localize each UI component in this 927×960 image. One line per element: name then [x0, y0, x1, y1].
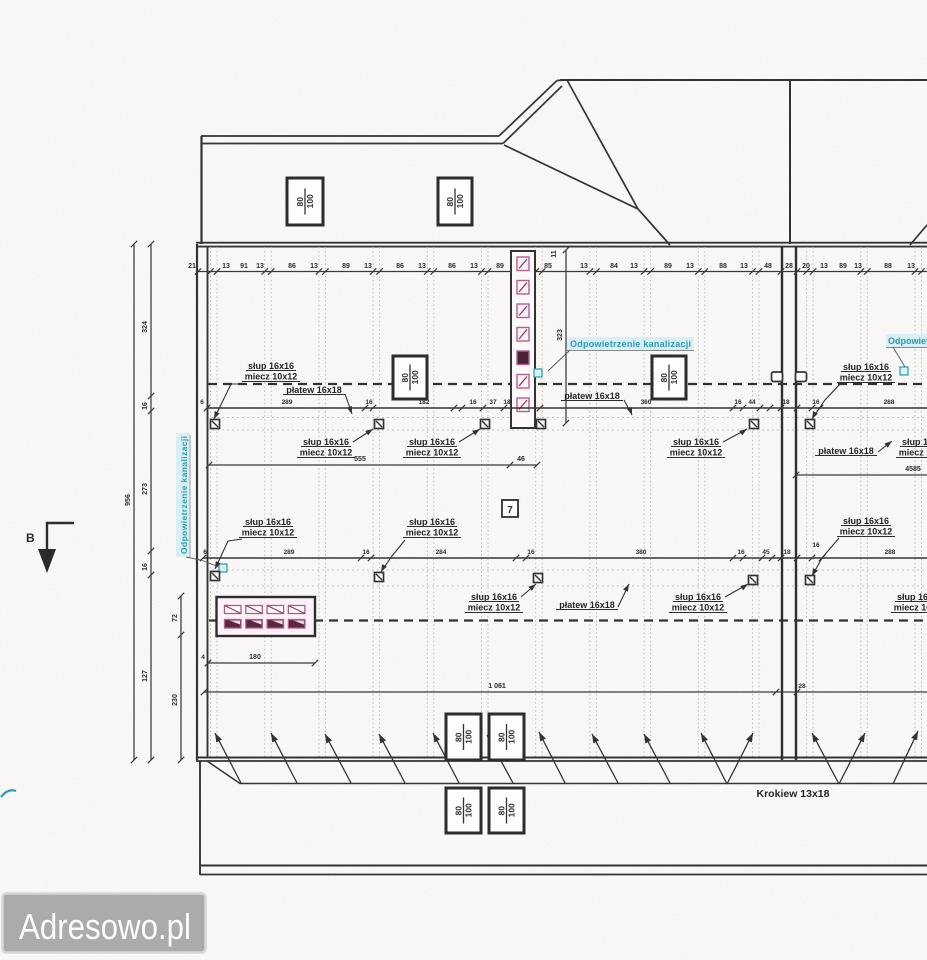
svg-text:13: 13: [740, 263, 748, 270]
svg-text:80: 80: [496, 806, 506, 816]
svg-text:323: 323: [557, 329, 564, 341]
svg-text:230: 230: [172, 694, 179, 706]
svg-text:16: 16: [142, 563, 149, 571]
svg-text:100: 100: [506, 803, 516, 817]
svg-text:555: 555: [354, 456, 366, 463]
svg-text:956: 956: [125, 494, 132, 506]
svg-text:273: 273: [142, 483, 149, 495]
svg-text:Odpowietrzenie kanalizacji: Odpowietrzenie kanalizacji: [179, 436, 189, 554]
svg-text:86: 86: [448, 263, 456, 270]
svg-text:16: 16: [365, 399, 373, 406]
svg-text:miecz 10x12: miecz 10x12: [899, 448, 927, 458]
svg-text:13: 13: [418, 263, 426, 270]
svg-text:6: 6: [203, 549, 207, 556]
svg-text:20: 20: [802, 263, 810, 270]
svg-text:B: B: [26, 531, 35, 545]
svg-text:72: 72: [172, 614, 179, 622]
svg-text:37: 37: [489, 399, 497, 406]
svg-text:13: 13: [222, 263, 230, 270]
svg-text:18: 18: [782, 399, 790, 406]
svg-text:słup 16x16: słup 16x16: [303, 437, 349, 447]
svg-text:380: 380: [636, 549, 647, 556]
svg-text:Krokiew 13x18: Krokiew 13x18: [757, 788, 830, 800]
svg-text:86: 86: [288, 263, 296, 270]
svg-text:miecz 10x12: miecz 10x12: [300, 448, 353, 458]
svg-text:289: 289: [282, 399, 293, 406]
svg-text:18: 18: [783, 549, 791, 556]
svg-text:100: 100: [463, 729, 473, 743]
svg-text:16: 16: [812, 542, 820, 549]
svg-text:słup 16x16: słup 16x16: [409, 517, 455, 527]
svg-text:miecz 10x12: miecz 10x12: [840, 373, 893, 383]
svg-text:16: 16: [469, 399, 477, 406]
svg-text:13: 13: [364, 263, 372, 270]
svg-text:słup 16x16: słup 16x16: [248, 361, 294, 371]
svg-text:słup 16x16: słup 16x16: [843, 362, 889, 372]
svg-text:płatew 16x18: płatew 16x18: [286, 385, 342, 395]
svg-text:słup 16x16: słup 16x16: [245, 517, 291, 527]
svg-text:89: 89: [839, 263, 847, 270]
svg-text:słup 16x16: słup 16x16: [673, 437, 719, 447]
svg-text:28: 28: [785, 263, 793, 270]
svg-text:100: 100: [506, 729, 516, 743]
svg-text:16: 16: [737, 549, 745, 556]
svg-text:288: 288: [884, 399, 895, 406]
svg-text:80: 80: [445, 197, 455, 207]
svg-text:80: 80: [400, 373, 410, 383]
svg-text:miecz 10x12: miecz 10x12: [894, 603, 927, 613]
svg-text:4585: 4585: [905, 466, 921, 473]
svg-text:6: 6: [200, 399, 204, 406]
svg-text:13: 13: [580, 263, 588, 270]
svg-text:80: 80: [659, 373, 669, 383]
svg-text:13: 13: [470, 263, 478, 270]
svg-text:7: 7: [507, 505, 513, 516]
svg-text:13: 13: [256, 263, 264, 270]
svg-text:28: 28: [798, 683, 806, 690]
svg-text:miecz 10x12: miecz 10x12: [406, 448, 459, 458]
svg-text:11: 11: [551, 250, 558, 258]
svg-text:48: 48: [764, 263, 772, 270]
svg-text:44: 44: [748, 399, 756, 406]
svg-text:Odpowietrz: Odpowietrz: [888, 336, 927, 346]
svg-text:80: 80: [496, 732, 506, 742]
svg-text:100: 100: [455, 194, 465, 208]
svg-text:1 061: 1 061: [488, 683, 506, 690]
svg-text:13: 13: [686, 263, 694, 270]
svg-text:płatew 16x18: płatew 16x18: [564, 391, 620, 401]
svg-text:płatew 16x18: płatew 16x18: [818, 446, 874, 456]
svg-text:100: 100: [410, 370, 420, 384]
svg-text:16: 16: [362, 549, 370, 556]
svg-text:słup 16x16: słup 16x16: [675, 592, 721, 602]
svg-text:182: 182: [419, 399, 430, 406]
svg-text:Adresowo.pl: Adresowo.pl: [19, 906, 191, 947]
svg-text:16: 16: [812, 399, 820, 406]
svg-text:13: 13: [854, 263, 862, 270]
svg-text:89: 89: [342, 263, 350, 270]
svg-text:45: 45: [762, 549, 770, 556]
svg-text:288: 288: [885, 549, 896, 556]
svg-text:100: 100: [463, 803, 473, 817]
svg-text:85: 85: [544, 263, 552, 270]
svg-text:284: 284: [436, 549, 447, 556]
svg-text:miecz 10x12: miecz 10x12: [242, 528, 295, 538]
svg-text:miecz 10x12: miecz 10x12: [672, 603, 725, 613]
svg-text:88: 88: [719, 263, 727, 270]
svg-text:127: 127: [142, 670, 149, 682]
svg-text:słup 16x16: słup 16x16: [897, 592, 927, 602]
svg-text:324: 324: [142, 321, 149, 333]
svg-text:13: 13: [820, 263, 828, 270]
svg-text:płatew 16x18: płatew 16x18: [559, 600, 615, 610]
svg-text:miecz 10x12: miecz 10x12: [670, 448, 723, 458]
svg-text:46: 46: [517, 456, 525, 463]
svg-text:4: 4: [201, 654, 205, 661]
svg-text:13: 13: [630, 263, 638, 270]
svg-text:21: 21: [188, 263, 196, 270]
svg-text:miecz 10x12: miecz 10x12: [406, 528, 459, 538]
svg-text:16: 16: [734, 399, 742, 406]
svg-text:13: 13: [310, 263, 318, 270]
svg-text:360: 360: [641, 399, 652, 406]
svg-text:180: 180: [249, 654, 261, 661]
svg-text:88: 88: [884, 263, 892, 270]
svg-text:16: 16: [142, 402, 149, 410]
svg-text:80: 80: [453, 732, 463, 742]
svg-text:91: 91: [240, 263, 248, 270]
svg-text:16: 16: [527, 549, 535, 556]
svg-text:89: 89: [664, 263, 672, 270]
svg-text:13: 13: [907, 263, 915, 270]
svg-text:miecz 10x12: miecz 10x12: [245, 372, 298, 382]
svg-text:słup 16x16: słup 16x16: [902, 437, 927, 447]
svg-text:80: 80: [453, 806, 463, 816]
svg-text:słup 16x16: słup 16x16: [843, 516, 889, 526]
svg-text:miecz 10x12: miecz 10x12: [840, 527, 893, 537]
svg-text:100: 100: [305, 194, 315, 208]
svg-text:289: 289: [284, 549, 295, 556]
svg-text:84: 84: [610, 263, 618, 270]
svg-text:miecz 10x12: miecz 10x12: [468, 603, 521, 613]
svg-text:86: 86: [396, 263, 404, 270]
svg-text:słup 16x16: słup 16x16: [409, 437, 455, 447]
svg-text:18: 18: [503, 399, 511, 406]
svg-text:100: 100: [669, 370, 679, 384]
svg-text:89: 89: [496, 263, 504, 270]
svg-text:słup 16x16: słup 16x16: [471, 592, 517, 602]
svg-text:80: 80: [295, 197, 305, 207]
svg-text:Odpowietrzenie kanalizacji: Odpowietrzenie kanalizacji: [570, 339, 691, 349]
